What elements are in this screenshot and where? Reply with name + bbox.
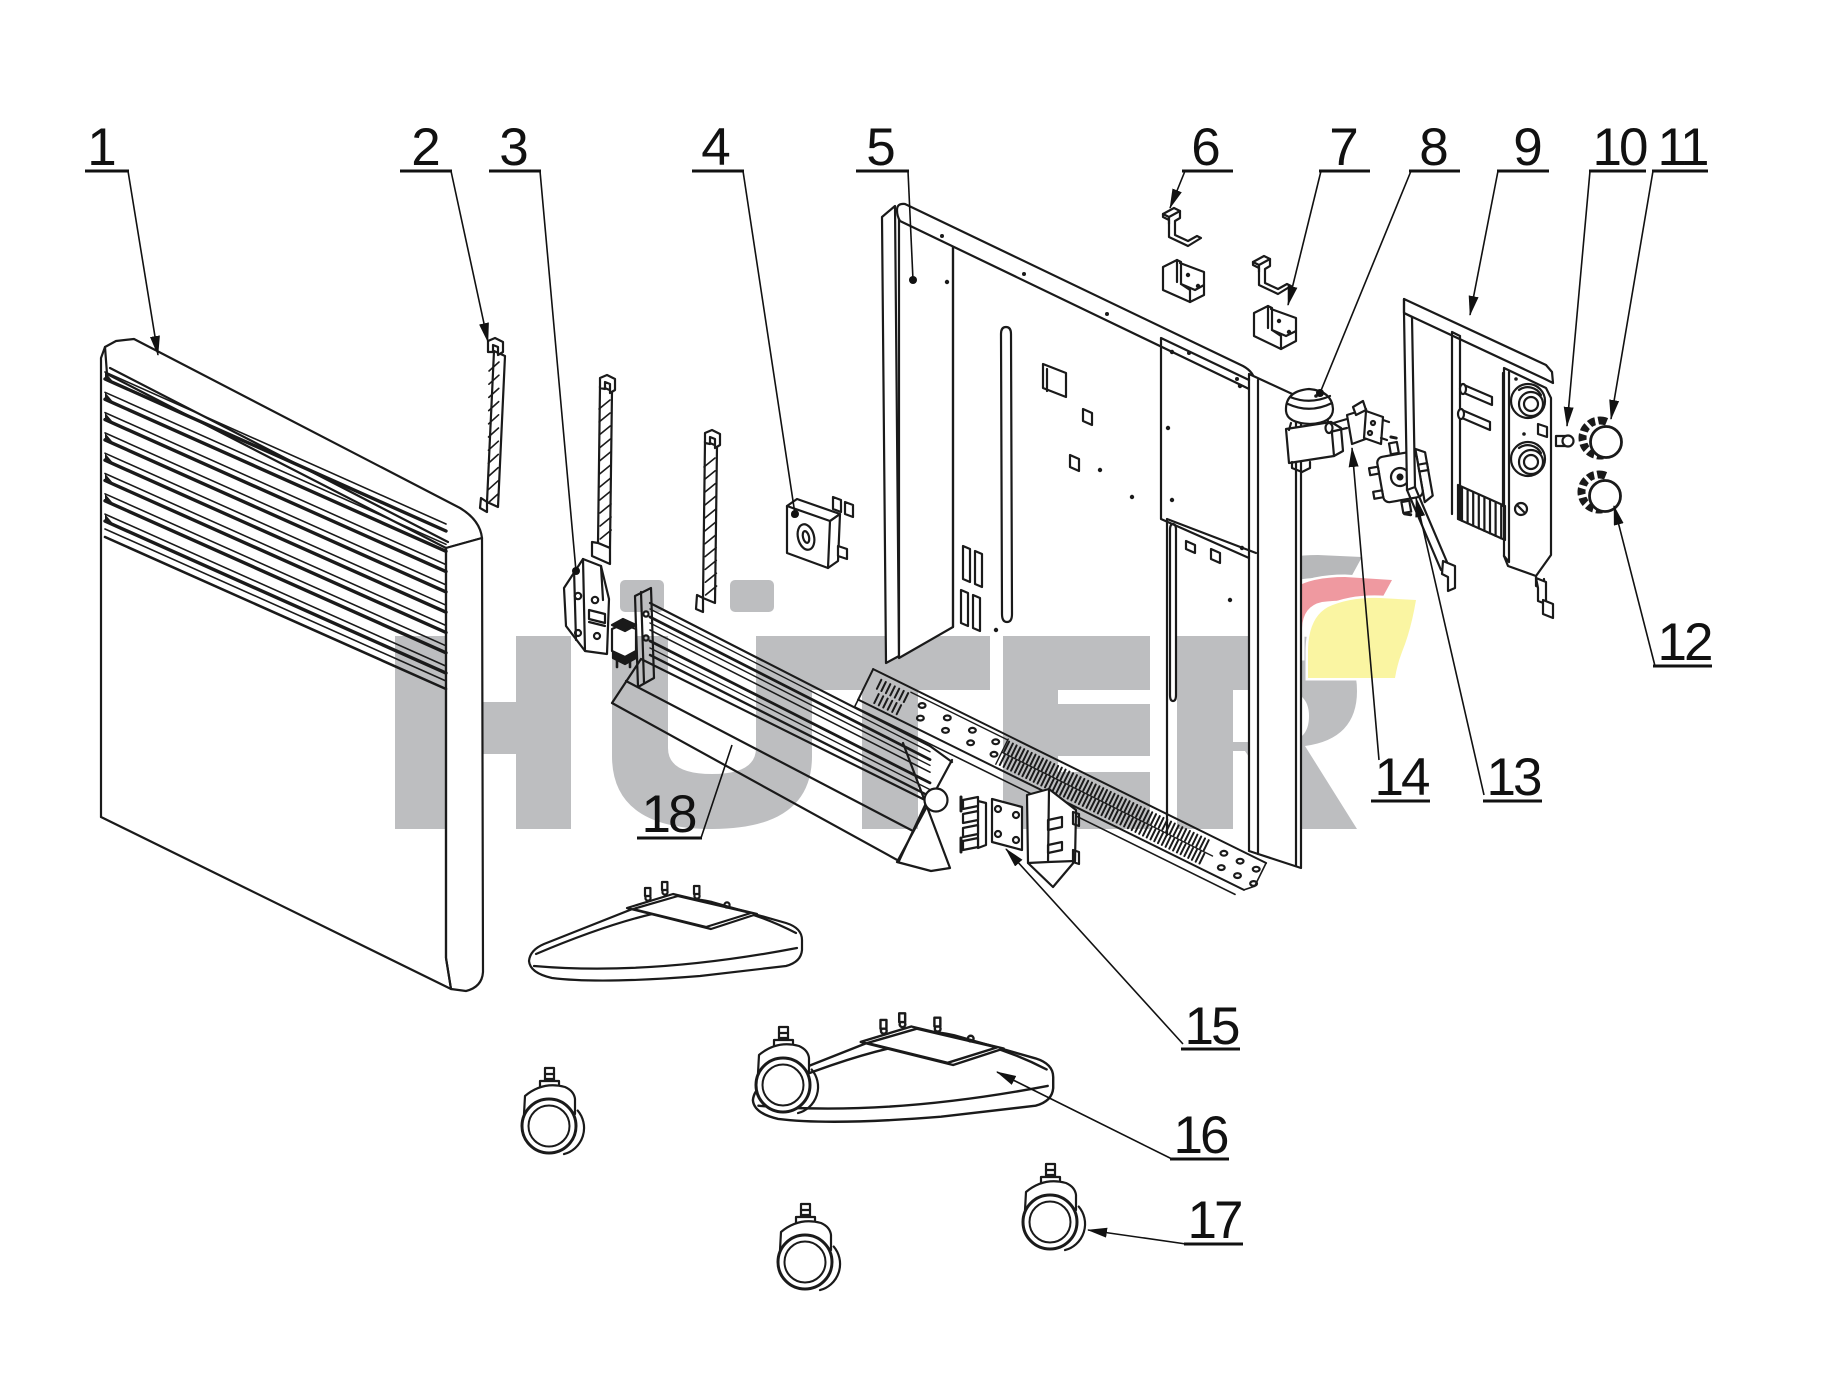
svg-text:3: 3 (499, 118, 528, 177)
svg-text:6: 6 (1191, 118, 1220, 177)
svg-text:8: 8 (1419, 118, 1448, 177)
svg-text:5: 5 (866, 118, 895, 177)
svg-text:1: 1 (87, 118, 116, 177)
svg-text:18: 18 (642, 785, 696, 844)
svg-text:16: 16 (1174, 1106, 1228, 1165)
svg-text:11: 11 (1657, 118, 1707, 177)
svg-text:4: 4 (701, 118, 730, 177)
svg-text:12: 12 (1658, 613, 1711, 672)
svg-text:13: 13 (1487, 748, 1541, 807)
svg-text:9: 9 (1513, 118, 1542, 177)
svg-text:15: 15 (1185, 997, 1239, 1056)
svg-text:17: 17 (1188, 1191, 1241, 1250)
svg-text:10: 10 (1593, 118, 1647, 177)
svg-text:14: 14 (1375, 748, 1429, 807)
svg-text:2: 2 (411, 118, 440, 177)
svg-text:7: 7 (1329, 118, 1358, 177)
